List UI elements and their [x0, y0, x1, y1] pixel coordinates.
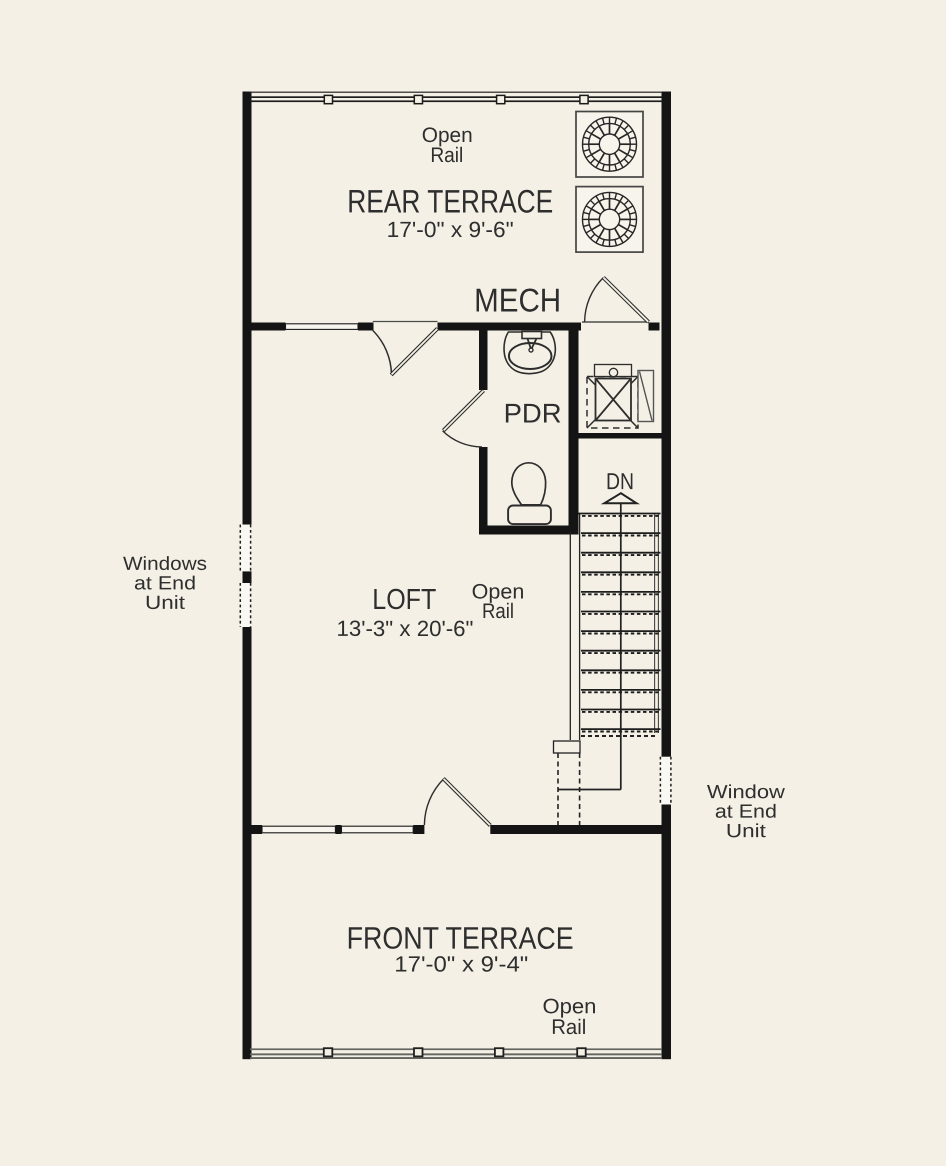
svg-text:Rail: Rail [551, 1016, 586, 1039]
svg-text:13'-3" x 20'-6": 13'-3" x 20'-6" [336, 616, 473, 641]
svg-text:Rail: Rail [430, 144, 463, 167]
svg-text:Unit: Unit [145, 593, 186, 614]
svg-text:Windows: Windows [123, 554, 207, 575]
svg-text:17'-0" x 9'-4": 17'-0" x 9'-4" [394, 951, 528, 976]
svg-text:MECH: MECH [474, 282, 561, 319]
svg-text:Rail: Rail [482, 600, 514, 623]
svg-text:Window: Window [707, 782, 785, 803]
svg-text:at End: at End [134, 573, 196, 594]
svg-text:Unit: Unit [726, 821, 767, 842]
svg-text:PDR: PDR [504, 399, 562, 429]
svg-text:17'-0" x 9'-6": 17'-0" x 9'-6" [387, 217, 514, 242]
svg-text:FRONT TERRACE: FRONT TERRACE [347, 921, 574, 956]
svg-text:LOFT: LOFT [372, 584, 436, 616]
svg-text:Open: Open [542, 995, 596, 1018]
svg-text:at End: at End [715, 802, 777, 823]
svg-text:DN: DN [606, 468, 634, 494]
svg-text:REAR TERRACE: REAR TERRACE [347, 183, 553, 219]
